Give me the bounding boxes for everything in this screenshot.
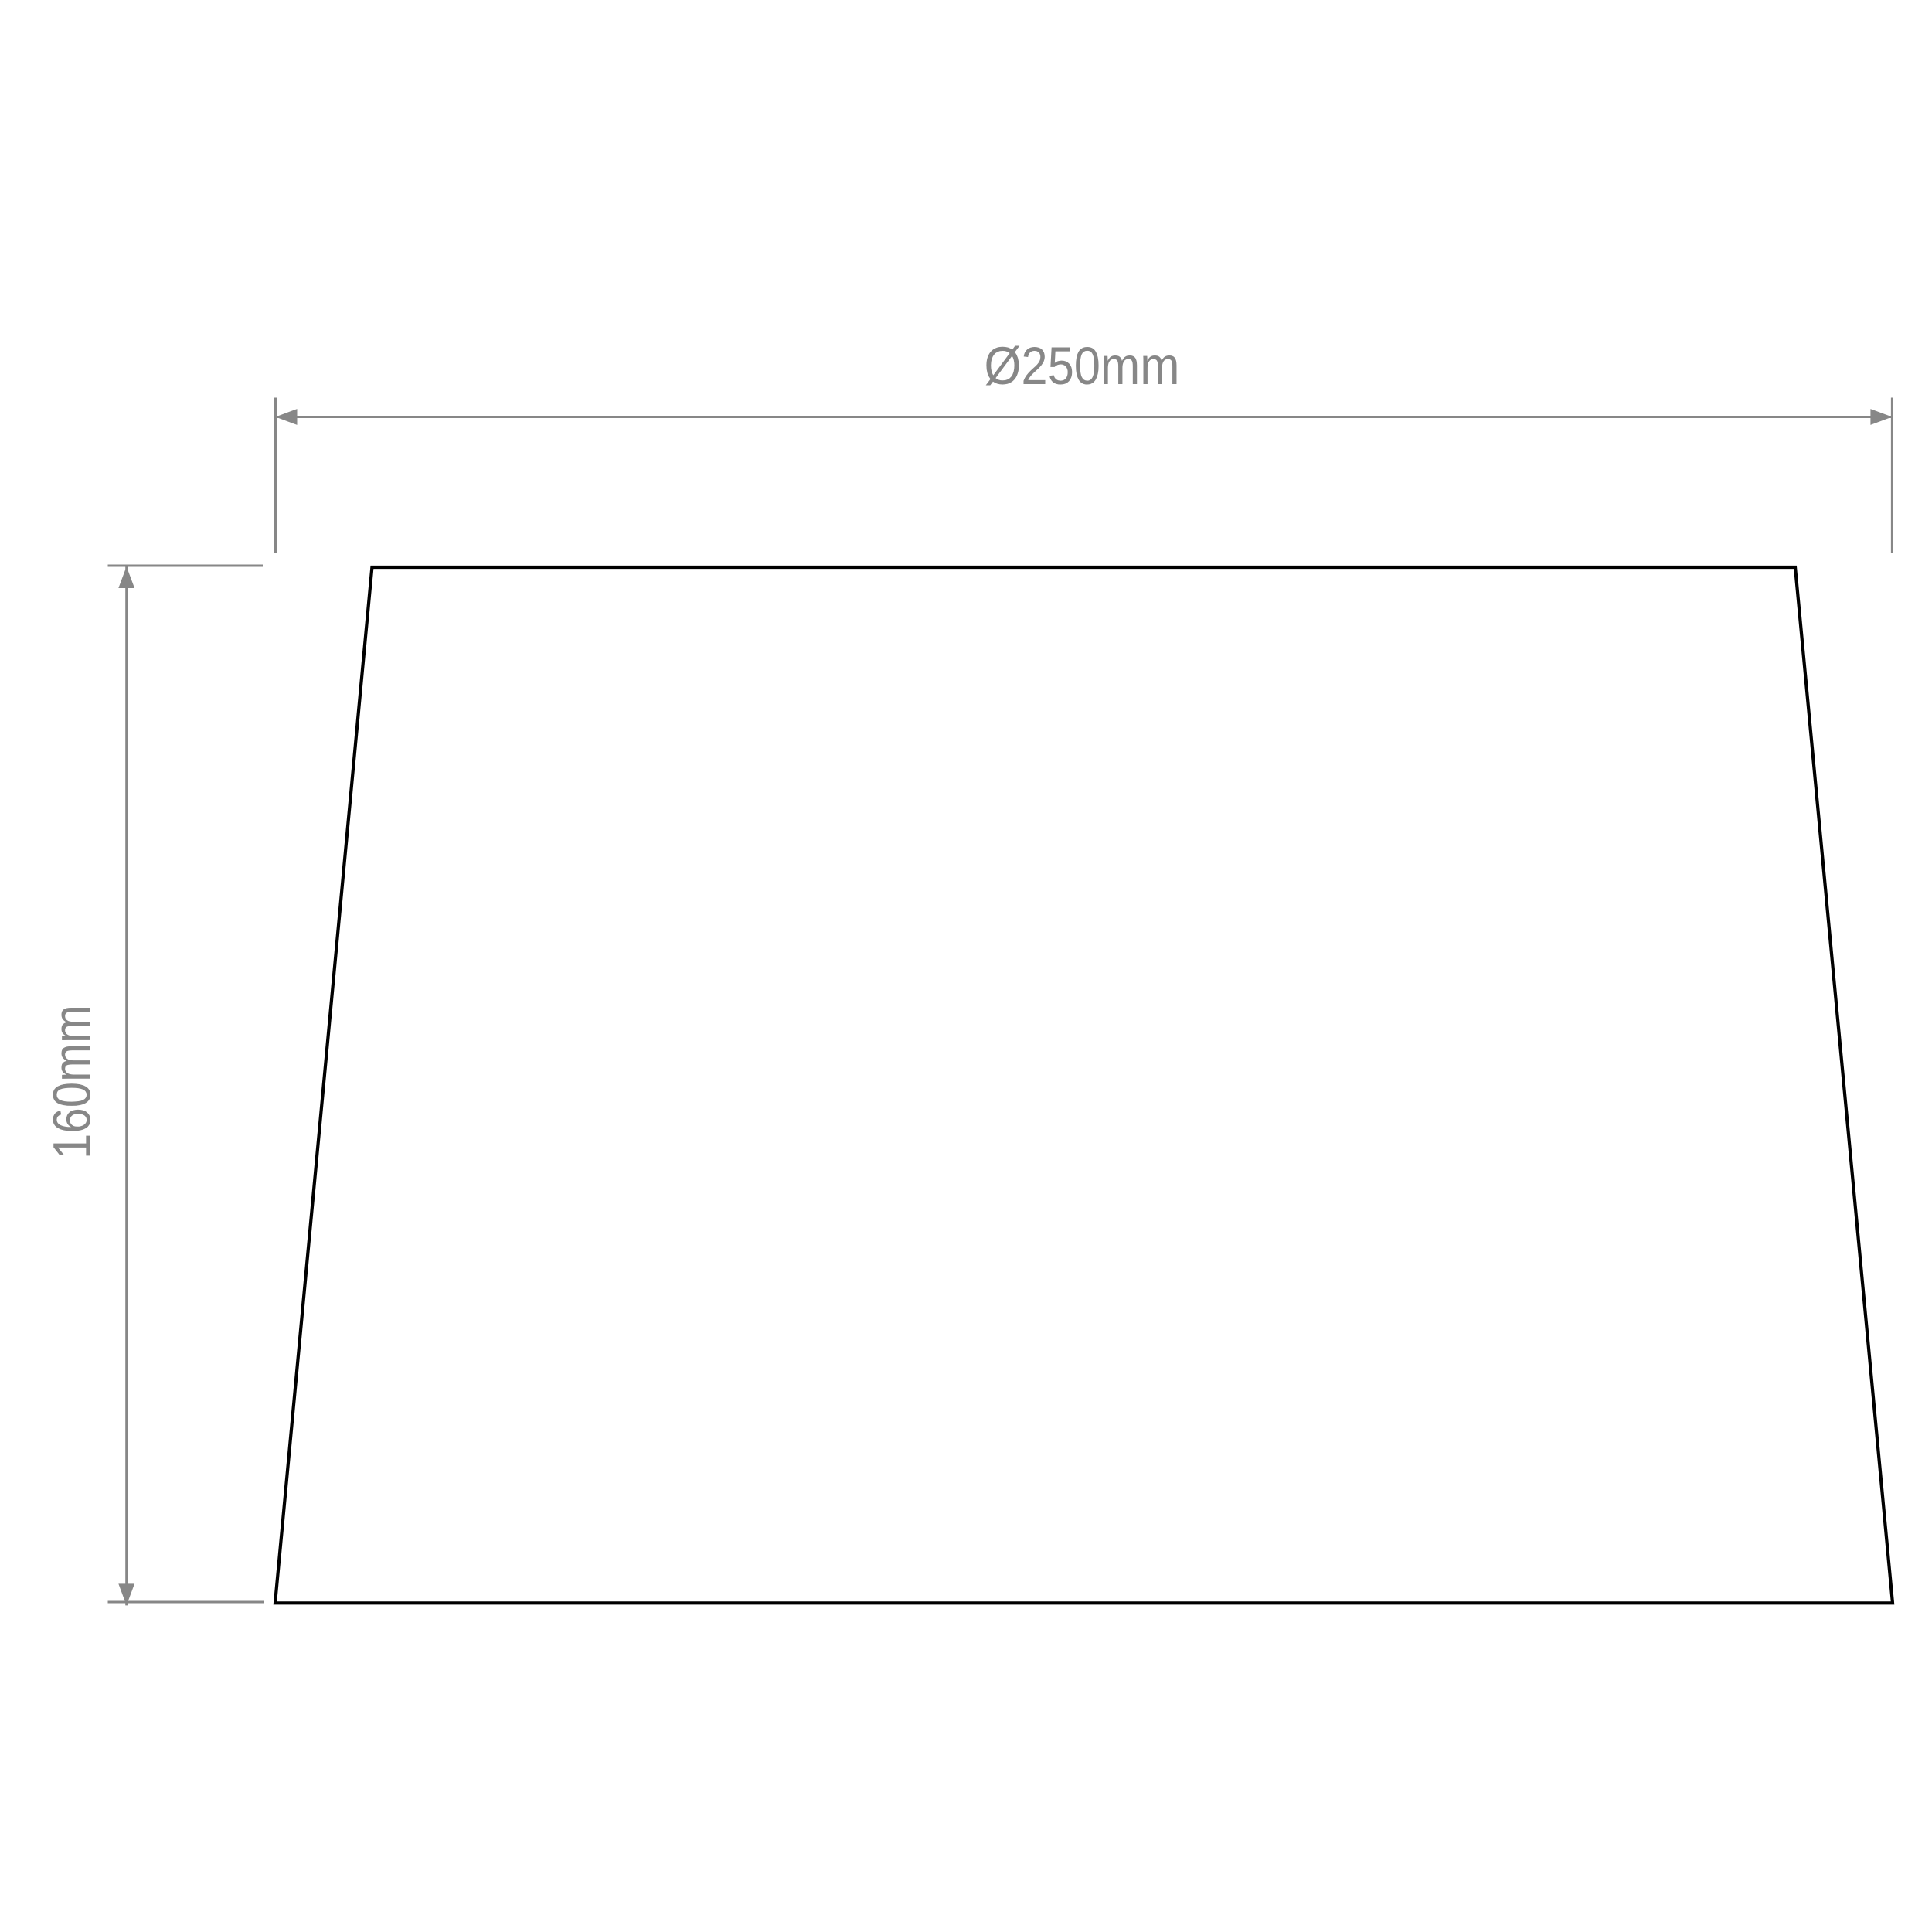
- svg-text:Ø250mm: Ø250mm: [985, 336, 1180, 396]
- svg-text:160mm: 160mm: [42, 1005, 101, 1159]
